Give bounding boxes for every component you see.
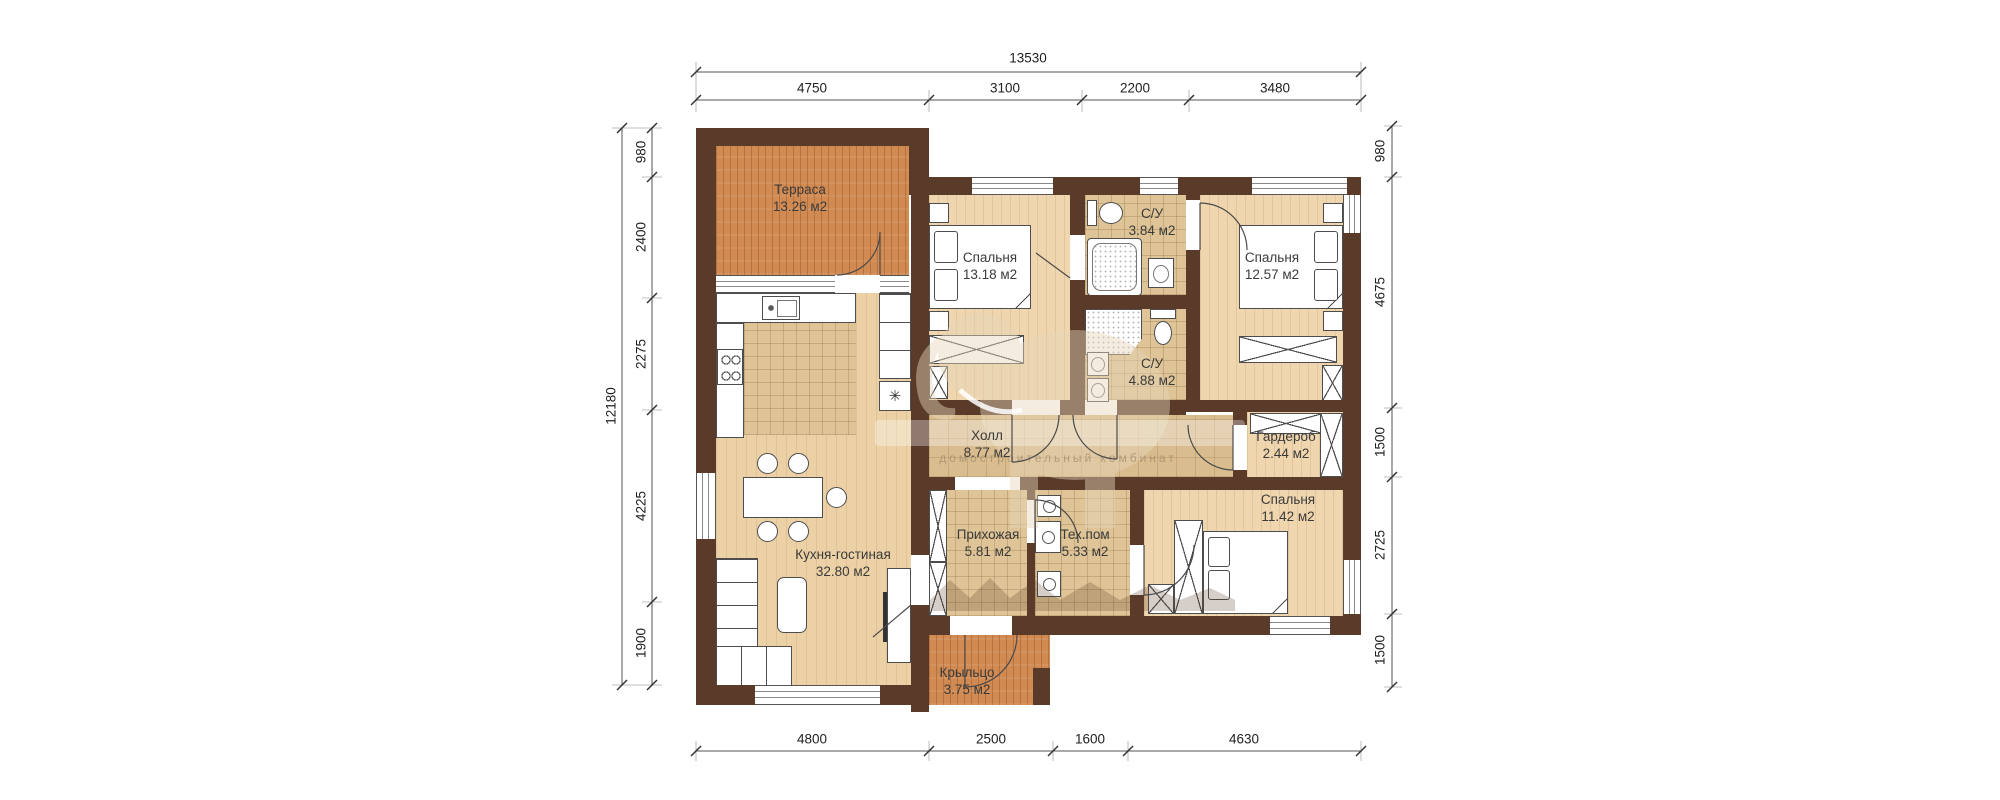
dim-right-seg: 1500 bbox=[1373, 427, 1388, 457]
dim-bottom-seg: 2500 bbox=[976, 732, 1006, 747]
room-area: 4.88 м2 bbox=[1129, 372, 1176, 389]
dim-left-seg: 1900 bbox=[634, 628, 649, 658]
room-area: 13.26 м2 bbox=[773, 198, 827, 215]
door-arc bbox=[1144, 545, 1194, 595]
dim-right-seg: 1500 bbox=[1373, 635, 1388, 665]
room-area: 8.77 м2 bbox=[964, 444, 1011, 461]
room-name: Тех.пом bbox=[1060, 526, 1109, 543]
room-name: С/У bbox=[1129, 355, 1176, 372]
room-label-hall: Холл 8.77 м2 bbox=[964, 427, 1011, 461]
room-name: Терраса bbox=[773, 181, 827, 198]
dim-left-seg: 2400 bbox=[634, 222, 649, 252]
room-name: С/У bbox=[1129, 205, 1176, 222]
room-label-entry: Прихожая 5.81 м2 bbox=[957, 526, 1020, 560]
floor-plan-canvas: ✳ bbox=[0, 0, 2000, 800]
door-arc bbox=[1188, 425, 1233, 470]
room-label-bathroom2: С/У 4.88 м2 bbox=[1129, 355, 1176, 389]
dim-left-seg: 4225 bbox=[634, 491, 649, 521]
dim-top-seg: 3100 bbox=[990, 81, 1020, 96]
plan-annotations bbox=[0, 0, 2000, 800]
door-arc bbox=[1200, 203, 1247, 250]
room-area: 3.84 м2 bbox=[1129, 222, 1176, 239]
dim-bottom-seg: 4630 bbox=[1229, 732, 1259, 747]
dim-left-seg: 980 bbox=[634, 141, 649, 164]
room-name: Прихожая bbox=[957, 526, 1020, 543]
dimension-ticks bbox=[617, 67, 1397, 756]
room-label-bedroom3: Спальня 11.42 м2 bbox=[1261, 491, 1315, 525]
room-area: 12.57 м2 bbox=[1245, 266, 1299, 283]
dim-top-seg: 3480 bbox=[1260, 81, 1290, 96]
door-leaf bbox=[1036, 253, 1070, 278]
room-name: Кухня-гостиная bbox=[795, 546, 891, 563]
door-arc bbox=[837, 232, 880, 275]
room-name: Спальня bbox=[963, 249, 1017, 266]
dim-left-total: 12180 bbox=[604, 387, 619, 425]
room-label-porch: Крыльцо 3.75 м2 bbox=[939, 664, 994, 698]
room-name: Спальня bbox=[1261, 491, 1315, 508]
dim-left-seg: 2275 bbox=[634, 339, 649, 369]
room-name: Гардероб bbox=[1256, 428, 1315, 445]
door-arc bbox=[1012, 415, 1059, 462]
room-area: 13.18 м2 bbox=[963, 266, 1017, 283]
room-area: 5.81 м2 bbox=[957, 543, 1020, 560]
room-label-bathroom1: С/У 3.84 м2 bbox=[1129, 205, 1176, 239]
extension-lines bbox=[612, 62, 1402, 761]
room-name: Крыльцо bbox=[939, 664, 994, 681]
room-label-bedroom1: Спальня 13.18 м2 bbox=[963, 249, 1017, 283]
dim-top-total: 13530 bbox=[1009, 51, 1047, 66]
door-arc bbox=[1073, 415, 1117, 459]
room-area: 11.42 м2 bbox=[1261, 508, 1315, 525]
room-label-bedroom2: Спальня 12.57 м2 bbox=[1245, 249, 1299, 283]
door-leaf bbox=[873, 605, 911, 637]
room-area: 5.33 м2 bbox=[1060, 543, 1109, 560]
dim-right-seg: 2725 bbox=[1373, 530, 1388, 560]
room-label-terrace: Терраса 13.26 м2 bbox=[773, 181, 827, 215]
room-area: 3.75 м2 bbox=[939, 681, 994, 698]
dim-top-seg: 2200 bbox=[1120, 81, 1150, 96]
room-name: Холл bbox=[964, 427, 1011, 444]
room-label-kitchen-living: Кухня-гостиная 32.80 м2 bbox=[795, 546, 891, 580]
room-area: 32.80 м2 bbox=[795, 563, 891, 580]
dim-right-seg: 4675 bbox=[1373, 277, 1388, 307]
room-label-tech: Тех.пом 5.33 м2 bbox=[1060, 526, 1109, 560]
room-label-wardrobe: Гардероб 2.44 м2 bbox=[1256, 428, 1315, 462]
room-area: 2.44 м2 bbox=[1256, 445, 1315, 462]
dim-bottom-seg: 4800 bbox=[797, 732, 827, 747]
dim-top-seg: 4750 bbox=[797, 81, 827, 96]
dimension-lines bbox=[622, 72, 1392, 751]
doors bbox=[837, 203, 1247, 687]
dim-right-seg: 980 bbox=[1373, 140, 1388, 163]
dim-bottom-seg: 1600 bbox=[1075, 732, 1105, 747]
room-name: Спальня bbox=[1245, 249, 1299, 266]
